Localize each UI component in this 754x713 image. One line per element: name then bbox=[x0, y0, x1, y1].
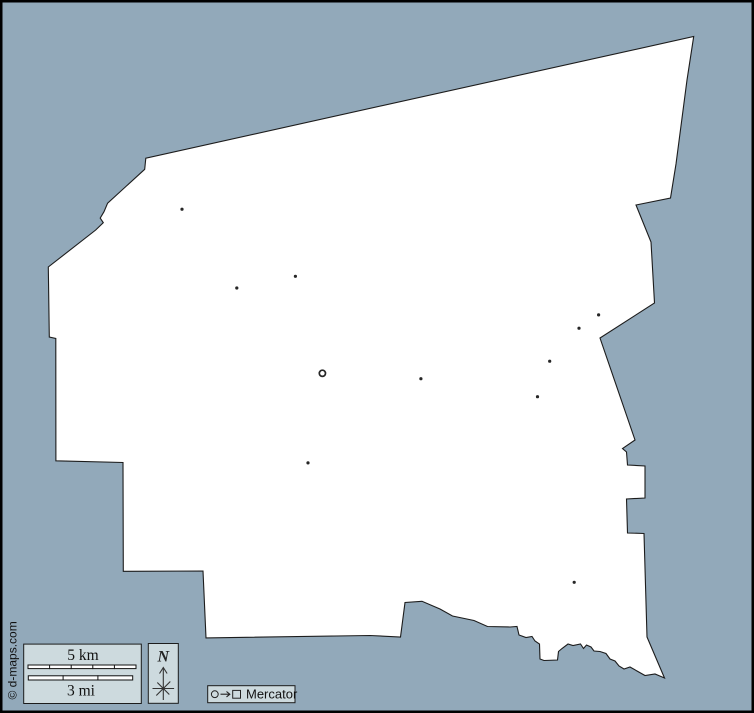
svg-text:© d-maps.com: © d-maps.com bbox=[6, 621, 20, 699]
svg-text:N: N bbox=[157, 649, 171, 666]
svg-text:Mercator: Mercator bbox=[246, 687, 298, 702]
svg-text:5 km: 5 km bbox=[67, 647, 98, 664]
svg-text:3 mi: 3 mi bbox=[67, 683, 96, 700]
